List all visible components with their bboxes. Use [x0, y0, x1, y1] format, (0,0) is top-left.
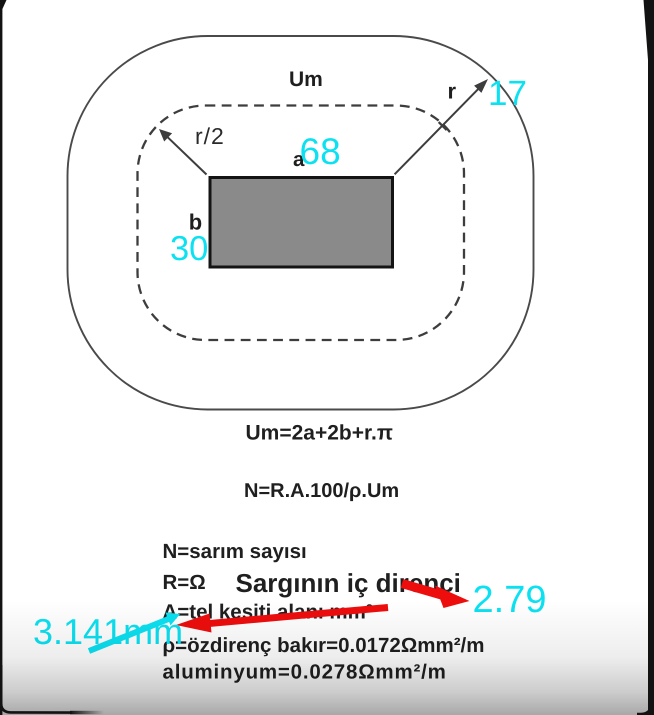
svg-text:N=sarım sayısı: N=sarım sayısı — [163, 540, 307, 563]
svg-text:17: 17 — [488, 74, 527, 113]
svg-text:N=R.A.100/ρ.Um: N=R.A.100/ρ.Um — [244, 480, 399, 502]
svg-text:Um: Um — [289, 68, 323, 91]
svg-text:30: 30 — [170, 230, 208, 268]
svg-text:r: r — [448, 79, 457, 104]
svg-text:68: 68 — [300, 131, 341, 172]
svg-text:R=Ω: R=Ω — [163, 571, 206, 594]
svg-text:r/2: r/2 — [195, 123, 225, 149]
svg-text:Um=2a+2b+r.π: Um=2a+2b+r.π — [246, 422, 393, 445]
